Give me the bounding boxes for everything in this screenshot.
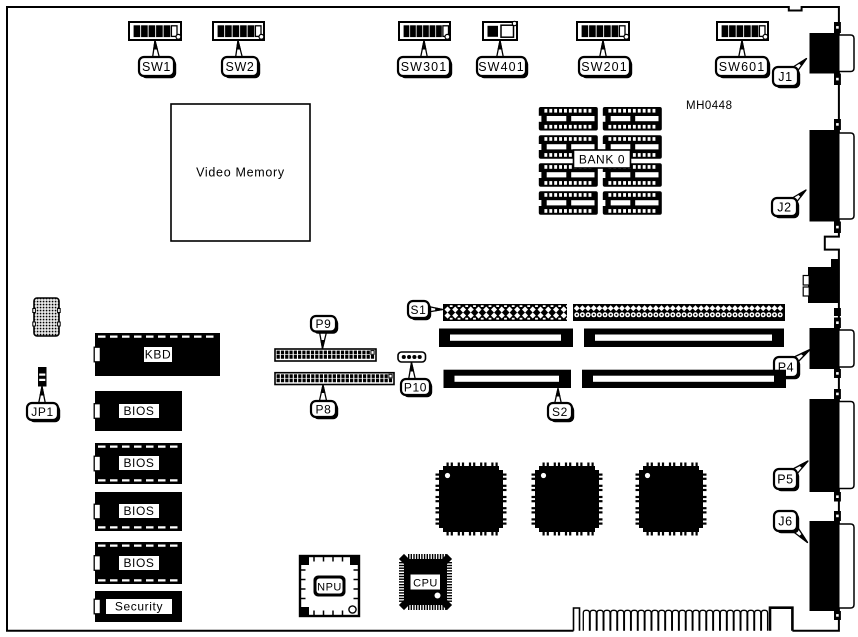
svg-text:P10: P10 <box>404 380 427 394</box>
svg-text:P9: P9 <box>316 317 332 331</box>
svg-text:BIOS: BIOS <box>123 456 154 470</box>
svg-text:BANK 0: BANK 0 <box>579 153 625 167</box>
svg-text:Security: Security <box>115 600 163 614</box>
svg-text:P8: P8 <box>316 402 332 416</box>
svg-text:J1: J1 <box>778 70 792 84</box>
svg-text:NPU: NPU <box>317 582 342 594</box>
svg-text:KBD: KBD <box>145 348 171 362</box>
svg-text:SW2: SW2 <box>226 60 255 74</box>
svg-text:P5: P5 <box>777 472 794 486</box>
svg-text:S1: S1 <box>411 303 427 317</box>
svg-text:SW601: SW601 <box>719 60 766 74</box>
svg-text:SW1: SW1 <box>142 60 171 74</box>
svg-text:BIOS: BIOS <box>123 556 154 570</box>
svg-text:SW201: SW201 <box>581 60 628 74</box>
svg-text:BIOS: BIOS <box>123 404 154 418</box>
svg-text:SW301: SW301 <box>401 60 448 74</box>
svg-text:Video Memory: Video Memory <box>196 166 285 180</box>
svg-text:S2: S2 <box>552 405 568 419</box>
svg-text:J2: J2 <box>777 200 791 214</box>
svg-text:J6: J6 <box>778 514 792 528</box>
svg-text:BIOS: BIOS <box>123 504 154 518</box>
svg-text:MH0448: MH0448 <box>686 100 732 112</box>
svg-text:JP1: JP1 <box>31 405 53 419</box>
svg-text:SW401: SW401 <box>478 60 525 74</box>
svg-text:CPU: CPU <box>413 578 438 590</box>
